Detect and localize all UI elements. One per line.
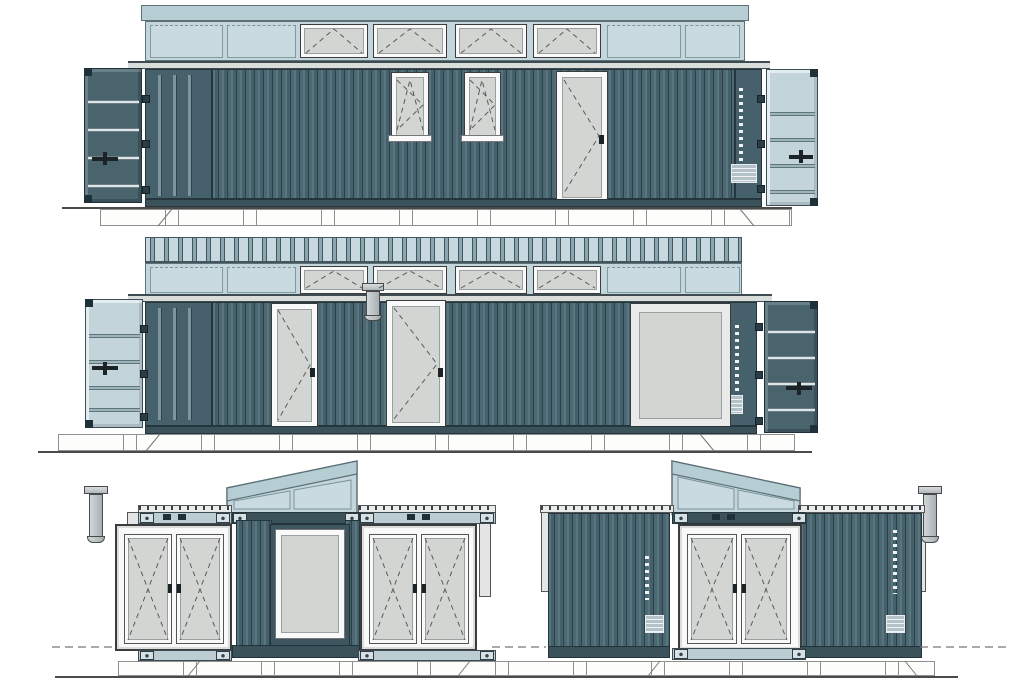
corner-casting bbox=[674, 513, 688, 523]
corner-casting bbox=[674, 649, 688, 659]
bay-header-rail bbox=[672, 512, 806, 524]
downpipe-shoe bbox=[921, 536, 939, 543]
french-door-leaf bbox=[741, 534, 791, 644]
roof-edge-fasteners bbox=[540, 505, 674, 513]
french-door-leaf bbox=[687, 534, 737, 644]
container-end-sill bbox=[548, 646, 670, 658]
door-handle bbox=[742, 584, 746, 593]
csc-plate bbox=[886, 615, 905, 633]
corner-casting bbox=[792, 513, 806, 523]
container-bottom-rail bbox=[672, 648, 806, 660]
downpipe-hopper bbox=[918, 486, 942, 494]
container-markings bbox=[645, 556, 649, 600]
vent-block bbox=[712, 514, 720, 520]
container-markings bbox=[893, 530, 897, 594]
roof-edge-fasteners bbox=[798, 505, 925, 513]
downpipe bbox=[923, 494, 937, 540]
csc-plate bbox=[645, 615, 664, 633]
drawing-canvas bbox=[0, 0, 1024, 683]
view-end-elevation-right bbox=[0, 0, 1024, 683]
vent-block bbox=[727, 514, 735, 520]
corner-casting bbox=[792, 649, 806, 659]
container-end-sill bbox=[800, 646, 922, 658]
ground-line bbox=[55, 676, 958, 678]
foundation-strip bbox=[118, 661, 935, 676]
door-handle bbox=[733, 584, 737, 593]
